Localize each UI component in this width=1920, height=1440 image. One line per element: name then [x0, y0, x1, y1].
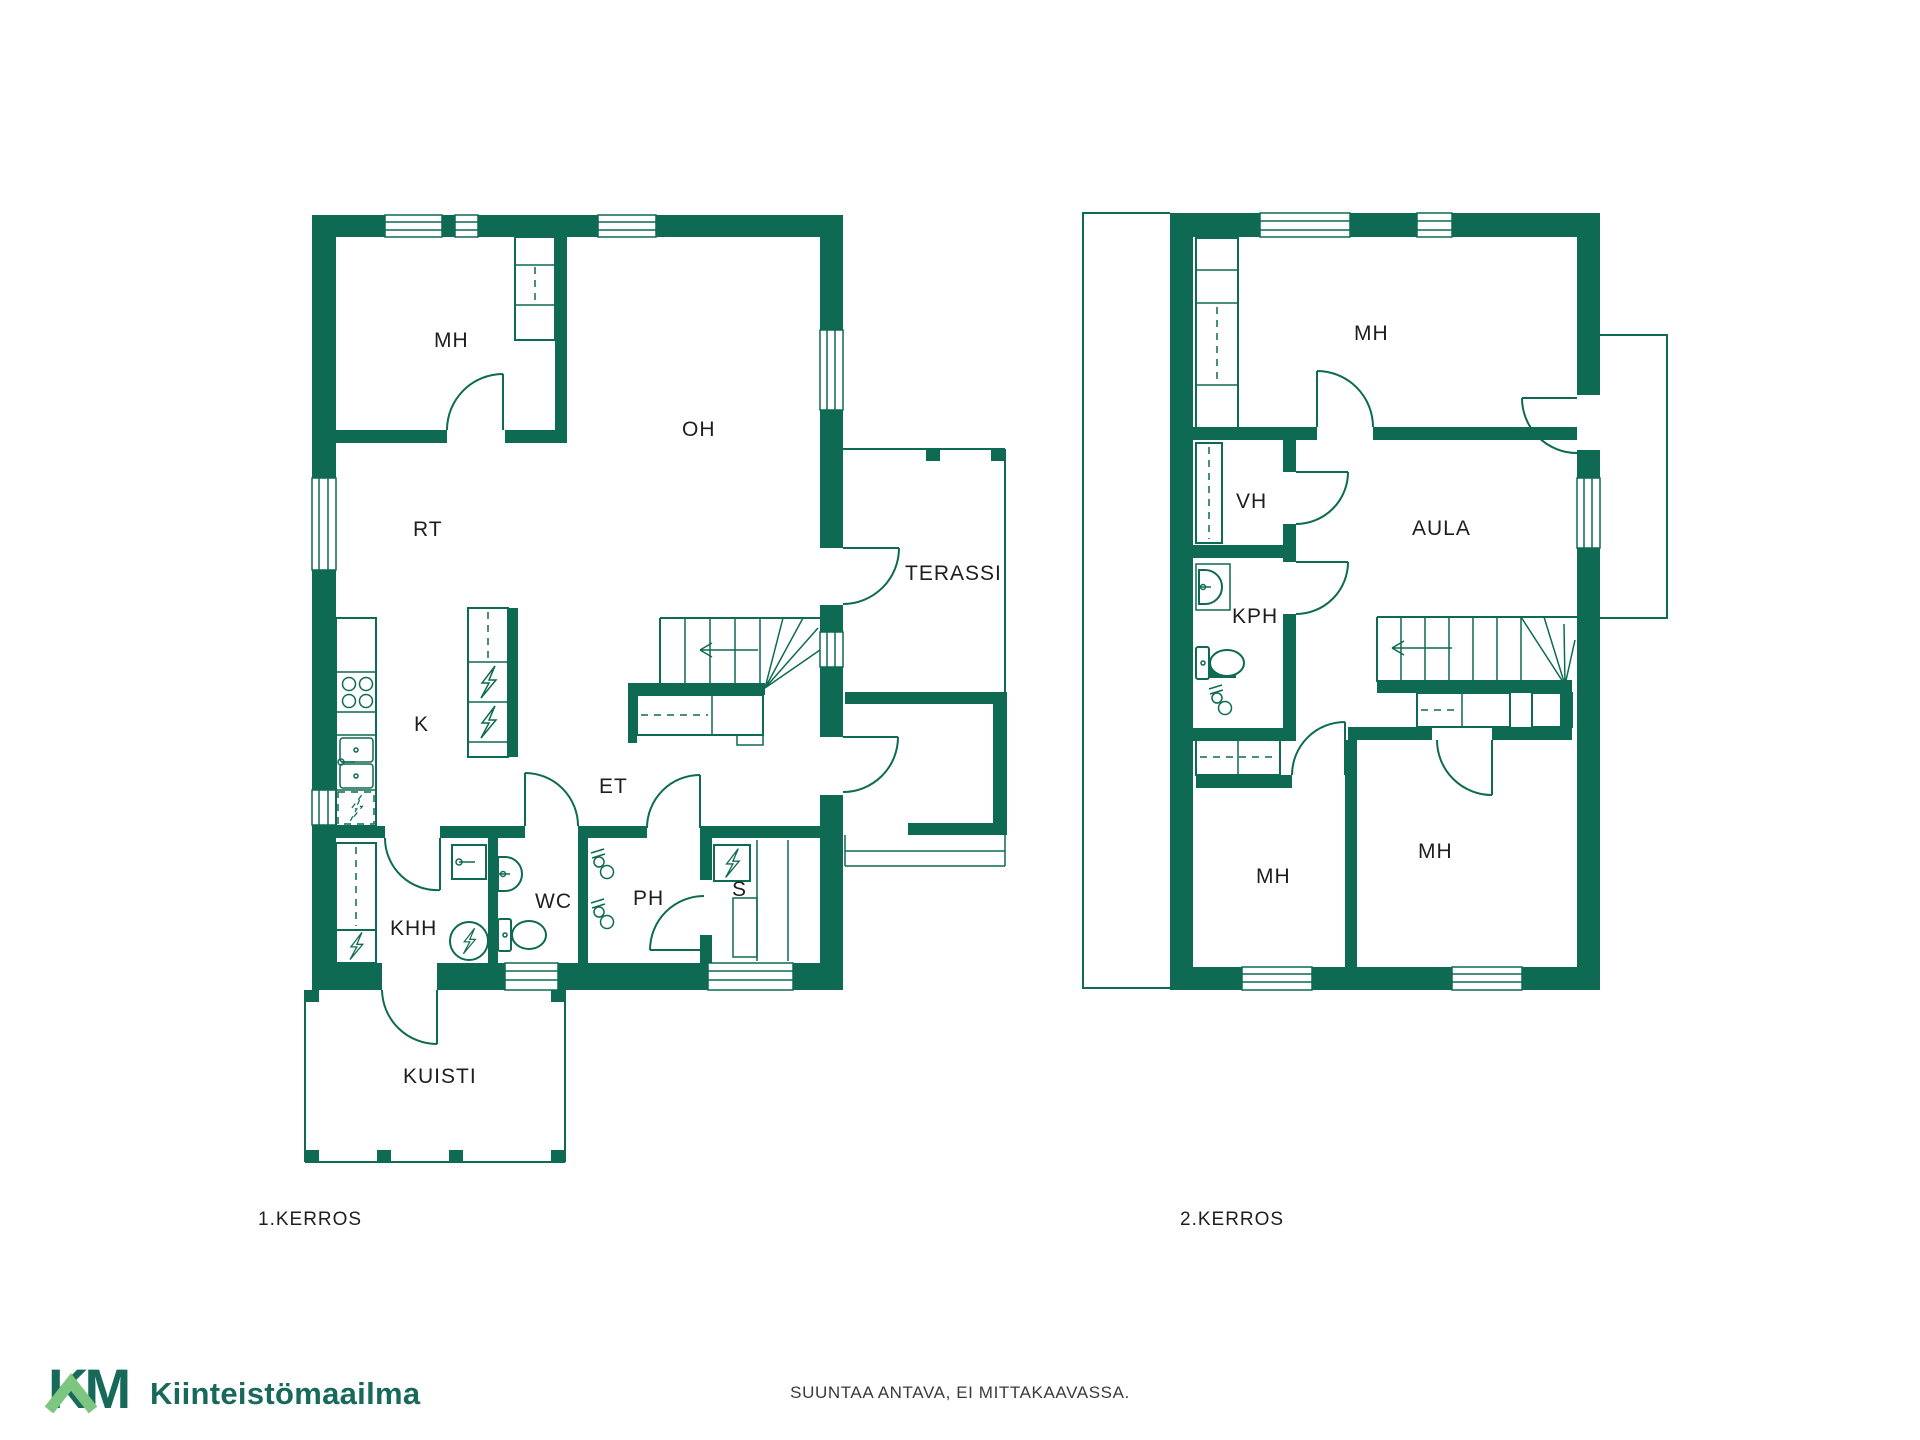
stairs-floor1 — [660, 618, 820, 688]
brand-name: Kiinteistömaailma — [150, 1376, 421, 1411]
window-icon-part — [312, 478, 336, 570]
window-icon-part — [1260, 213, 1350, 237]
floor1-door-openings — [382, 430, 843, 990]
floor2-windows — [1242, 213, 1600, 990]
door-arc-icon — [843, 737, 898, 792]
window-icon — [385, 215, 442, 237]
terrace-outline-part — [926, 449, 1005, 461]
toilet-icon — [1196, 647, 1244, 679]
porch-outline-part-part — [449, 1150, 463, 1162]
floor1-walls-part — [578, 838, 588, 963]
room-label-kuisti: KUISTI — [403, 1065, 477, 1088]
dishwasher-icon — [338, 792, 374, 824]
floor1-door-openings-part — [525, 826, 578, 838]
floor1-walls-part — [508, 608, 518, 757]
floor2-door-openings — [1577, 395, 1600, 450]
floor1-walls-part — [628, 683, 637, 743]
toilet-icon — [498, 919, 546, 951]
door-arc-icon — [385, 838, 440, 890]
floor2-walls-part — [1560, 680, 1572, 740]
floor1-walls-part — [488, 838, 498, 963]
terrace-outline-part-part — [926, 449, 940, 461]
door-arc-icon — [1317, 371, 1373, 427]
window-icon-part — [455, 215, 478, 237]
floor1-walls-part — [440, 826, 525, 838]
stairs-floor1-part — [685, 618, 760, 686]
porch-outline-part-part — [305, 990, 319, 1002]
wardrobe-icon — [1196, 740, 1280, 775]
terrace-outline-part-part — [991, 449, 1005, 461]
floor1-walls-part — [993, 692, 1007, 835]
floor1-door-openings-part — [647, 826, 700, 838]
water-heater-icon — [336, 930, 376, 963]
window-icon-part — [385, 215, 442, 237]
floor2-walls-part — [1170, 967, 1600, 990]
sink-icon-part — [340, 764, 373, 788]
porch-outline-part-part — [551, 1150, 565, 1162]
door-arc-icon — [525, 773, 578, 826]
sink-icon-part — [354, 774, 358, 778]
door-arc-icon-part — [843, 548, 899, 604]
floor2-walls-part — [1377, 680, 1572, 693]
dishwasher-icon-part — [338, 792, 374, 824]
floor1-plan: MH OH RT K ET KHH WC PH S TERASSI KUISTI… — [258, 215, 1007, 1230]
window-icon-part — [820, 330, 843, 410]
door-arc-icon-part — [843, 737, 898, 792]
door-arc-icon-part — [1292, 722, 1345, 775]
door-arc-icon-part — [1296, 562, 1348, 614]
floor1-walls-part — [700, 838, 712, 880]
stove-icon-part — [343, 695, 356, 708]
window-icon-part — [708, 963, 793, 990]
window-icon-part — [312, 790, 336, 825]
floorplan-image: MH OH RT K ET KHH WC PH S TERASSI KUISTI… — [0, 0, 1920, 1440]
floor1-caption: 1.KERROS — [258, 1209, 362, 1230]
floor2-walls-part — [1577, 213, 1600, 990]
stove-icon-part — [343, 678, 356, 691]
toilet-icon-part — [512, 921, 546, 949]
stairs-floor2-part — [1392, 641, 1452, 655]
window-icon — [1577, 478, 1600, 548]
wardrobe-icon — [515, 237, 555, 340]
washbasin-icon — [1196, 564, 1230, 610]
fridge-freezer-icon-part — [481, 706, 496, 738]
window-icon-part — [1417, 213, 1452, 237]
understair-closet — [637, 695, 763, 745]
floor2-walls-part — [1345, 740, 1357, 967]
utility-cabinet — [336, 843, 376, 930]
fridge-freezer-icon-part — [481, 666, 496, 698]
window-icon — [1452, 967, 1522, 990]
floor1-walls-part — [336, 430, 447, 443]
window-icon — [820, 632, 843, 667]
door-arc-icon — [1292, 722, 1345, 775]
floor2-plan: MH VH AULA KPH MH MH 2.KERROS — [1083, 213, 1667, 1230]
understair-closet-part — [1417, 693, 1510, 727]
floor1-walls — [312, 215, 1007, 990]
door-arc-icon-part — [1296, 472, 1348, 524]
floor2-walls-part — [1196, 775, 1292, 788]
room-label-wc: WC — [535, 890, 572, 913]
disclaimer-text: SUUNTAA ANTAVA, EI MITTAKAAVASSA. — [790, 1383, 1130, 1402]
door-arc-icon-part — [525, 773, 578, 826]
porch-outline-part-part — [377, 1150, 391, 1162]
room-label-mh2-right: MH — [1418, 840, 1453, 863]
window-icon — [455, 215, 478, 237]
room-label-kph: KPH — [1232, 605, 1278, 628]
sauna-stove-icon-part — [714, 845, 750, 881]
washing-machine-icon — [450, 922, 488, 960]
toilet-icon-part — [498, 919, 511, 951]
sink-icon — [338, 738, 373, 788]
floor1-door-openings-part — [820, 737, 843, 795]
room-label-vh: VH — [1236, 490, 1267, 513]
fridge-freezer-icon — [468, 608, 508, 757]
door-arc-icon — [1522, 398, 1577, 453]
floorplan-page: MH OH RT K ET KHH WC PH S TERASSI KUISTI… — [0, 0, 1920, 1440]
sauna-benches-part — [733, 898, 757, 957]
porch-outline-part-part — [305, 1150, 319, 1162]
laundry-sink-icon — [452, 845, 486, 879]
window-icon — [312, 478, 336, 570]
floor1-walls-part — [845, 692, 1007, 704]
window-icon-part — [1452, 967, 1522, 990]
stairs-floor2 — [1377, 617, 1577, 685]
room-label-ph: PH — [633, 887, 664, 910]
floor2-walls-part — [1283, 614, 1296, 735]
floor1-walls-part — [628, 683, 765, 695]
room-label-mh: MH — [434, 329, 469, 352]
stairs-floor2-part — [1401, 617, 1521, 682]
room-label-mh2-top: MH — [1354, 322, 1389, 345]
door-arc-icon — [382, 990, 437, 1044]
floor2-footprint-outline-part — [1600, 335, 1667, 618]
door-arc-icon-part — [1522, 398, 1577, 453]
understair-closet-part — [737, 735, 763, 745]
window-icon-part — [505, 963, 558, 990]
stairs-floor2-part — [1521, 617, 1575, 685]
floor2-walls-part — [1193, 545, 1296, 558]
wardrobe-icon-part — [1196, 270, 1238, 385]
patio-steps-part — [845, 835, 1005, 866]
door-arc-icon-part — [382, 990, 437, 1044]
window-icon — [505, 963, 558, 990]
toilet-icon-part — [1210, 650, 1244, 676]
floor2-walls-part — [1283, 440, 1296, 472]
floor1-walls-part — [578, 826, 647, 838]
washbasin-icon — [498, 857, 522, 891]
room-label-et: ET — [599, 775, 628, 798]
floor2-walls-part — [1170, 213, 1193, 990]
door-arc-icon — [1437, 740, 1492, 795]
floor1-walls-part — [336, 826, 385, 838]
porch-outline-part-part — [551, 990, 565, 1002]
room-label-rt: RT — [413, 518, 443, 541]
shower-mixer-icon — [591, 849, 614, 879]
room-label-s: S — [732, 878, 747, 901]
room-label-k: K — [414, 713, 429, 736]
floor2-footprint-outline-part — [1083, 213, 1170, 988]
door-arc-icon-part — [447, 374, 503, 430]
sauna-stove-icon-part — [726, 849, 740, 878]
door-arc-icon — [843, 548, 899, 604]
sink-icon-part — [354, 748, 358, 752]
door-arc-icon — [647, 775, 700, 828]
floor2-caption: 2.KERROS — [1180, 1209, 1284, 1230]
window-icon — [312, 790, 336, 825]
door-arc-icon-part — [647, 775, 700, 828]
shower-mixer-icon — [591, 899, 614, 929]
kitchen-counter — [336, 618, 376, 826]
patio-steps — [845, 835, 1005, 866]
window-icon-part — [820, 632, 843, 667]
window-icon — [820, 330, 843, 410]
door-arc-icon — [1296, 562, 1348, 614]
stove-icon-part — [360, 695, 373, 708]
water-heater-icon-part — [350, 932, 363, 959]
window-icon-part — [1242, 967, 1312, 990]
understair-closet — [1417, 693, 1572, 727]
window-icon — [1417, 213, 1452, 237]
sauna-benches-part — [757, 840, 788, 961]
floor2-walls-part — [1492, 727, 1507, 740]
door-arc-icon-part — [1317, 371, 1373, 427]
kitchen-counter-part — [336, 618, 376, 826]
floor2-door-openings-part — [1577, 395, 1600, 450]
sauna-stove-icon — [714, 845, 750, 881]
floor2-walls-part — [1348, 727, 1432, 740]
room-label-terassi: TERASSI — [905, 562, 1002, 585]
wardrobe-icon — [1196, 443, 1222, 543]
dishwasher-icon-part — [350, 795, 362, 821]
floor1-windows — [312, 215, 843, 990]
floor1-walls-part — [908, 823, 1007, 835]
door-arc-icon — [447, 374, 503, 430]
stairs-floor1-part — [765, 618, 820, 688]
window-icon — [598, 215, 656, 237]
washing-machine-icon-part — [450, 922, 488, 960]
door-arc-icon — [1296, 472, 1348, 524]
door-arc-icon-part — [385, 838, 440, 890]
stairs-floor1-part — [700, 643, 758, 657]
sink-icon-part — [340, 738, 373, 762]
room-label-mh2-left: MH — [1256, 865, 1291, 888]
room-label-khh: KHH — [390, 917, 437, 940]
floor1-door-openings-part — [382, 963, 437, 990]
room-label-aula: AULA — [1412, 517, 1471, 540]
toilet-icon-part — [1196, 647, 1209, 679]
window-icon — [1242, 967, 1312, 990]
door-arc-icon-part — [1437, 740, 1492, 795]
stove-icon-part — [360, 678, 373, 691]
wardrobe-icon-part — [515, 237, 555, 340]
floor1-door-openings-part — [385, 826, 440, 838]
window-icon-part — [598, 215, 656, 237]
wardrobe-icon — [1196, 238, 1238, 428]
floor2-walls-part — [1170, 213, 1600, 237]
window-icon — [708, 963, 793, 990]
floor1-door-openings-part — [447, 430, 505, 443]
window-icon — [1260, 213, 1350, 237]
floor1-walls-part — [312, 215, 336, 990]
window-icon-part — [1577, 478, 1600, 548]
floor1-walls-part — [700, 826, 820, 838]
floor1-door-openings-part — [820, 548, 843, 605]
floor1-walls-part — [555, 237, 567, 443]
stove-icon — [343, 678, 373, 708]
floor2-walls-part — [1373, 427, 1577, 440]
washing-machine-icon-part — [463, 928, 475, 954]
brand-logo: KM Kiinteistömaailma — [48, 1357, 421, 1420]
room-label-oh: OH — [682, 418, 716, 441]
shower-mixer-icon — [1209, 685, 1232, 715]
